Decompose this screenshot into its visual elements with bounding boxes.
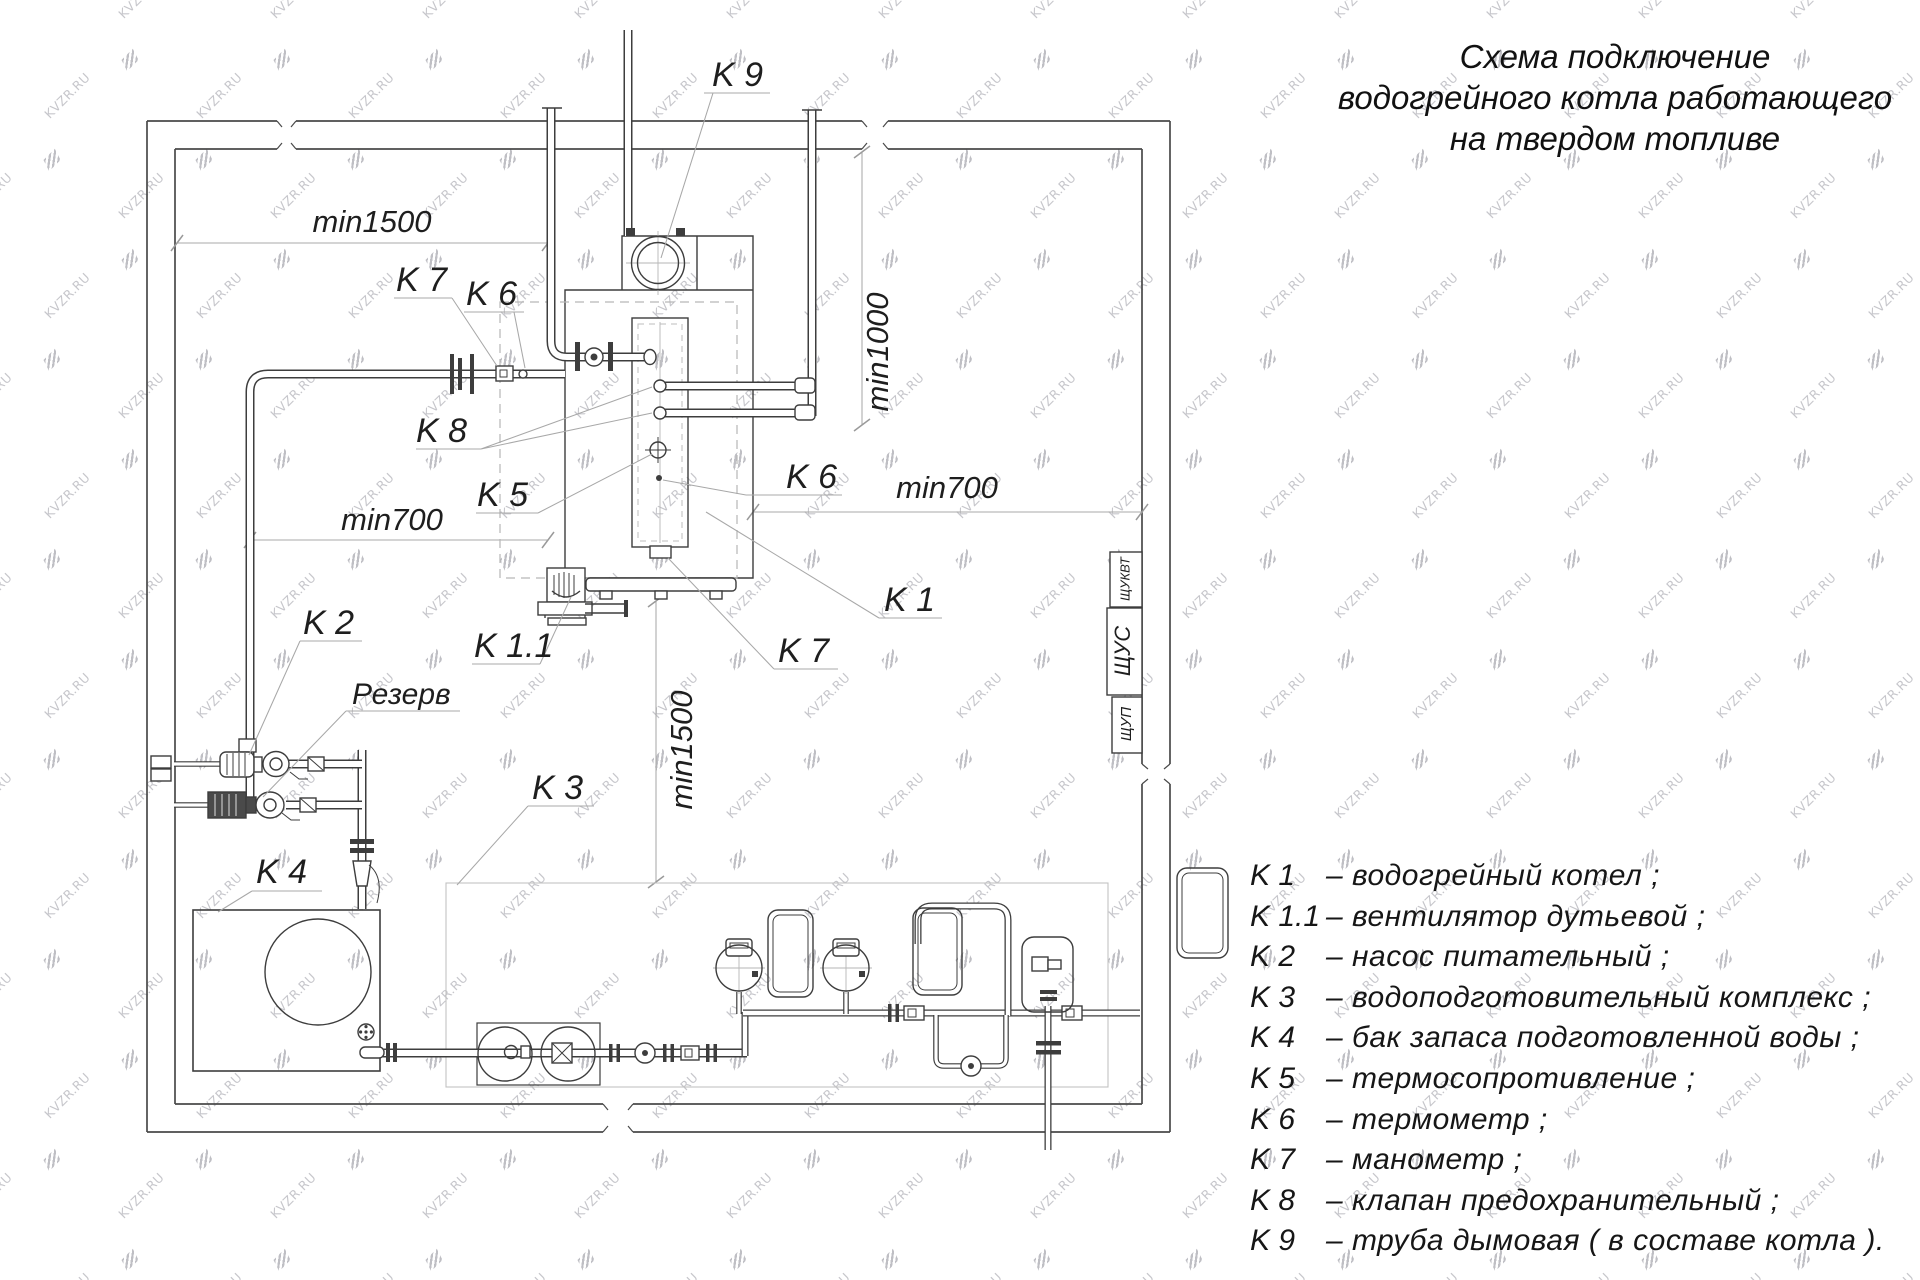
callout-k5: K 5 — [477, 476, 528, 514]
title-line-1: Схема подключение — [1295, 36, 1920, 77]
legend-row: K 4–бак запаса подготовленной воды ; — [1250, 1018, 1885, 1059]
legend-desc: манометр ; — [1352, 1140, 1522, 1181]
dim-top-1500: min1500 — [313, 204, 432, 239]
legend-key: K 7 — [1250, 1140, 1326, 1181]
legend-desc: насос питательный ; — [1352, 937, 1670, 978]
dim-right-700: min700 — [896, 470, 998, 505]
legend-separator: – — [1326, 937, 1352, 978]
callout-k3: K 3 — [532, 769, 583, 807]
storage-tank-k4 — [193, 910, 397, 1071]
legend-desc: клапан предохранительный ; — [1352, 1181, 1780, 1222]
legend-desc: водоподготовительный комплекс ; — [1352, 978, 1871, 1019]
legend-separator: – — [1326, 1018, 1352, 1059]
callout-k6-top: K 6 — [466, 275, 517, 313]
dim-vert-1000: min1000 — [860, 293, 895, 412]
legend-key: K 6 — [1250, 1100, 1326, 1141]
chimney-k9 — [626, 228, 690, 295]
callout-k7-top: K 7 — [396, 261, 448, 299]
control-panels: ЩУКВТ ЩУС ЩУП — [1107, 552, 1142, 753]
legend-key: K 8 — [1250, 1181, 1326, 1222]
legend-key: K 4 — [1250, 1018, 1326, 1059]
legend-separator: – — [1326, 1059, 1352, 1100]
legend-separator: – — [1326, 1140, 1352, 1181]
legend-row: K 6–термометр ; — [1250, 1100, 1885, 1141]
title-line-2: водогрейного котла работающего — [1295, 77, 1920, 118]
callout-k7-bottom: K 7 — [778, 632, 830, 670]
manometer-device-k7 — [496, 366, 513, 381]
callout-k4: K 4 — [256, 853, 307, 891]
dim-left-700: min700 — [341, 502, 443, 537]
title-line-3: на твердом топливе — [1295, 118, 1920, 159]
legend-separator: – — [1326, 1100, 1352, 1141]
callout-k6-right: K 6 — [786, 458, 837, 496]
dimension-lines — [171, 146, 1148, 888]
legend-desc: водогрейный котел ; — [1352, 856, 1660, 897]
legend-row: K 9–труба дымовая ( в составе котла ). — [1250, 1221, 1885, 1262]
legend-row: K 1–водогрейный котел ; — [1250, 856, 1885, 897]
legend-key: K 9 — [1250, 1221, 1326, 1262]
legend-desc: термометр ; — [1352, 1100, 1548, 1141]
callout-k8: K 8 — [416, 412, 467, 450]
room-walls — [147, 121, 1170, 1132]
dim-vert-1500: min1500 — [664, 691, 699, 810]
legend-key: K 1 — [1250, 856, 1326, 897]
legend-key: K 5 — [1250, 1059, 1326, 1100]
legend-key: K 3 — [1250, 978, 1326, 1019]
legend-desc: вентилятор дутьевой ; — [1352, 897, 1705, 938]
thermometer-point-k6 — [519, 370, 527, 378]
legend-row: K 1.1–вентилятор дутьевой ; — [1250, 897, 1885, 938]
legend-key: K 2 — [1250, 937, 1326, 978]
legend-separator: – — [1326, 978, 1352, 1019]
reserve-pump — [208, 792, 316, 820]
legend-row: K 5–термосопротивление ; — [1250, 1059, 1885, 1100]
callout-k2: K 2 — [303, 604, 354, 642]
legend-separator: – — [1326, 1181, 1352, 1222]
callout-k11: K 1.1 — [474, 627, 553, 665]
title-block: Схема подключение водогрейного котла раб… — [1295, 36, 1920, 159]
draft-fan-k11 — [538, 568, 628, 625]
callouts: K 9 K 7 K 6 K 8 K 5 K 6 K 1 K 7 K 2 Резе… — [218, 56, 942, 912]
legend-row: K 8–клапан предохранительный ; — [1250, 1181, 1885, 1222]
panel-label-top: ЩУКВТ — [1117, 556, 1132, 601]
legend-separator: – — [1326, 856, 1352, 897]
legend-row: K 7–манометр ; — [1250, 1140, 1885, 1181]
legend-desc: труба дымовая ( в составе котла ). — [1352, 1221, 1885, 1262]
legend: K 1–водогрейный котел ; K 1.1–вентилятор… — [1250, 856, 1885, 1262]
legend-row: K 3–водоподготовительный комплекс ; — [1250, 978, 1885, 1019]
legend-desc: термосопротивление ; — [1352, 1059, 1695, 1100]
panel-label-mid: ЩУС — [1110, 626, 1135, 676]
callout-k1: K 1 — [884, 581, 935, 619]
panel-label-bottom: ЩУП — [1118, 707, 1135, 741]
boiler-clearance-envelope — [500, 302, 737, 578]
legend-desc: бак запаса подготовленной воды ; — [1352, 1018, 1859, 1059]
legend-separator: – — [1326, 897, 1352, 938]
legend-key: K 1.1 — [1250, 897, 1326, 938]
callout-k9: K 9 — [712, 56, 763, 94]
tank-manhole — [265, 919, 371, 1025]
legend-row: K 2–насос питательный ; — [1250, 937, 1885, 978]
callout-reserve: Резерв — [352, 678, 451, 711]
drawing-sheet: KVZR.RUKVZR.RUKVZR.RUKVZR.RUKVZR.RUKVZR.… — [0, 0, 1920, 1280]
legend-separator: – — [1326, 1221, 1352, 1262]
